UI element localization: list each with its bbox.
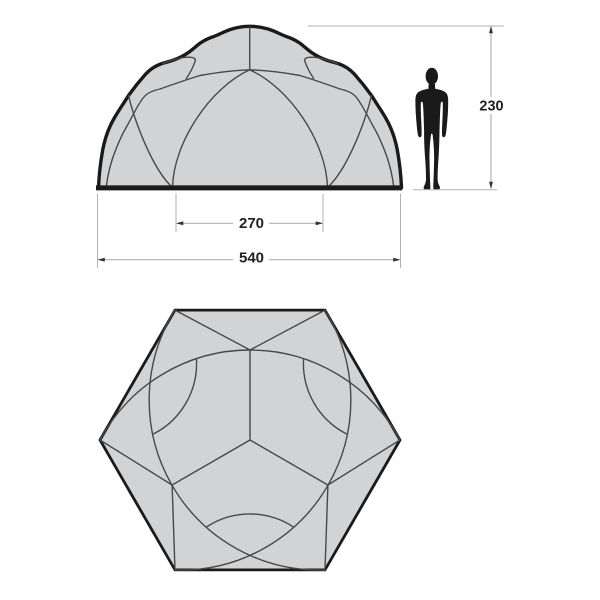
svg-text:540: 540: [239, 250, 264, 267]
svg-text:270: 270: [239, 215, 264, 232]
svg-text:230: 230: [479, 99, 503, 115]
